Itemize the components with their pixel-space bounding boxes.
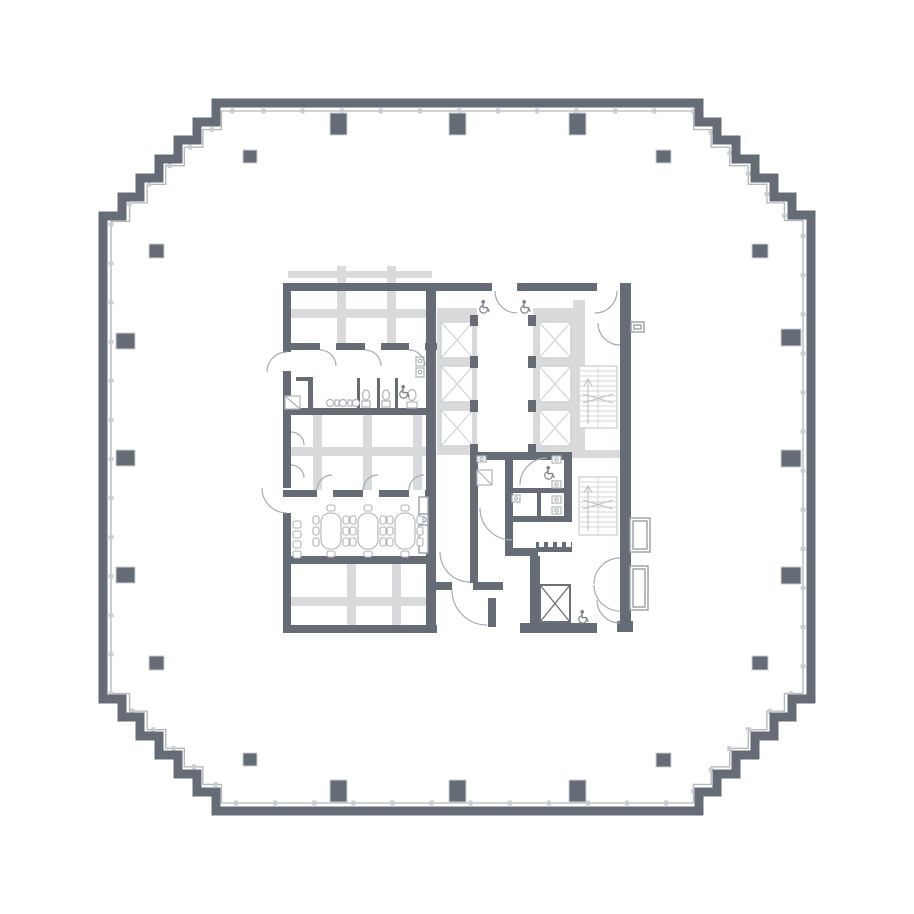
conference-table <box>321 513 341 549</box>
door-swing <box>597 600 620 623</box>
column <box>752 656 768 670</box>
column <box>781 450 801 467</box>
column <box>243 150 257 163</box>
wheelchair-icon <box>579 610 588 623</box>
side-chair <box>293 531 301 538</box>
column <box>656 753 671 767</box>
column <box>569 780 586 802</box>
door-swing <box>291 465 304 478</box>
elevator-shaft <box>539 410 571 446</box>
column <box>752 244 768 258</box>
perimeter-wall <box>103 103 811 811</box>
column <box>116 567 135 583</box>
column <box>781 567 801 584</box>
floor-plan-canvas <box>0 0 914 914</box>
stairwell-south <box>579 477 617 535</box>
column <box>330 780 347 802</box>
stairwell-north <box>579 366 617 428</box>
column <box>330 113 347 135</box>
column <box>116 450 135 466</box>
door-swing <box>452 590 487 625</box>
door-swing <box>440 552 470 582</box>
side-chair <box>293 541 301 548</box>
window-mullion-ticks <box>111 111 803 803</box>
door-swing <box>594 558 620 584</box>
elevator-banks <box>441 322 571 446</box>
exterior-wall <box>103 103 811 811</box>
side-chair <box>293 521 301 528</box>
column <box>116 333 135 349</box>
elevator-shaft <box>441 366 473 402</box>
door-swing <box>495 291 517 313</box>
elevator-shaft <box>441 322 473 358</box>
window-inner-line <box>111 111 803 803</box>
service-elevator <box>540 585 570 622</box>
wall-cabinet <box>634 325 641 329</box>
door-swing <box>365 350 381 366</box>
column <box>149 244 164 258</box>
door-swing <box>291 432 304 445</box>
floor-plan-svg <box>0 0 914 914</box>
column <box>449 113 466 135</box>
elevator-shaft <box>539 322 571 358</box>
furniture <box>293 505 423 558</box>
column <box>243 753 257 766</box>
wheelchair-icon <box>521 300 530 313</box>
door-swing <box>320 350 336 366</box>
elevator-shaft <box>441 410 473 446</box>
elevator-shaft <box>539 366 571 402</box>
conference-table <box>395 513 415 549</box>
door-swing <box>520 458 547 485</box>
side-chair <box>293 551 301 558</box>
column <box>449 780 466 802</box>
wall-cabinet <box>633 569 645 607</box>
column <box>149 656 164 670</box>
door-swing <box>598 323 620 345</box>
fire-hose-cabinet <box>633 521 647 549</box>
wheelchair-icon <box>545 466 554 479</box>
door-swing <box>267 352 287 372</box>
conference-table <box>358 513 378 549</box>
structural-columns <box>116 113 801 802</box>
column <box>569 113 586 135</box>
column <box>781 329 801 346</box>
wheelchair-icon <box>480 300 489 313</box>
door-swing <box>595 291 617 313</box>
column <box>656 150 671 163</box>
